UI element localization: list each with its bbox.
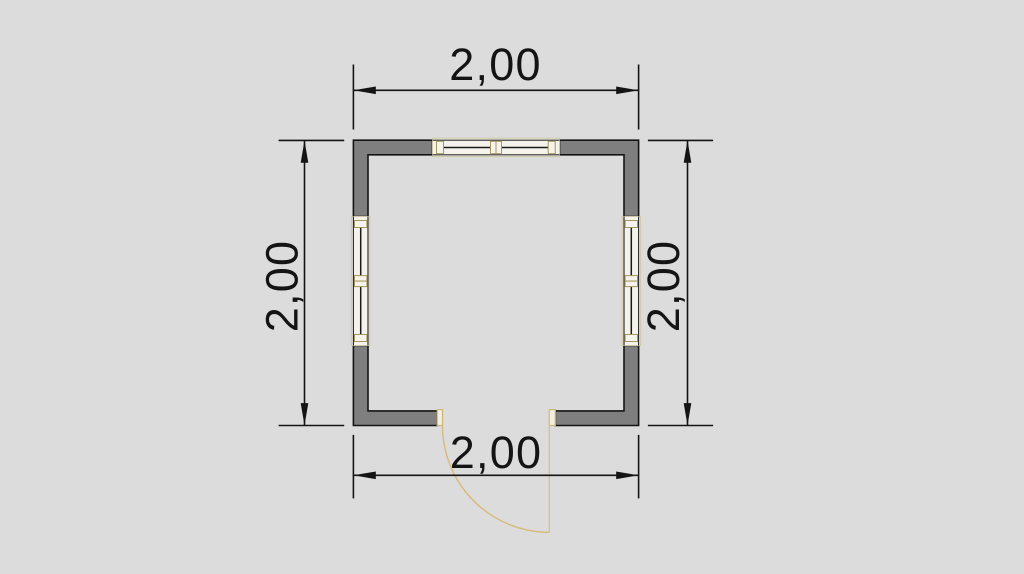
svg-text:2,00: 2,00 xyxy=(450,427,542,478)
svg-text:2,00: 2,00 xyxy=(638,240,689,332)
svg-text:2,00: 2,00 xyxy=(449,39,541,90)
svg-text:2,00: 2,00 xyxy=(257,240,308,332)
